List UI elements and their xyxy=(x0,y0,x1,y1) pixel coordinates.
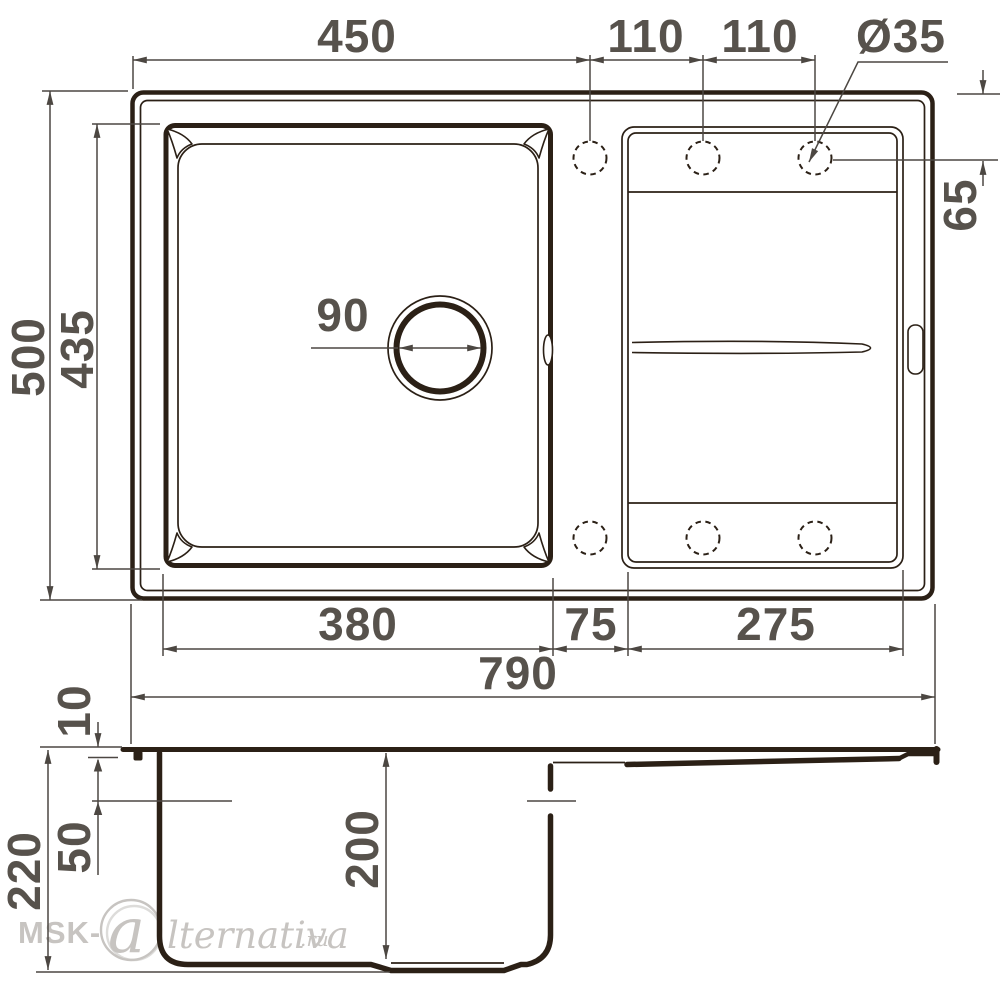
label-10: 10 xyxy=(48,684,100,737)
watermark: MSK- a lternativa .ru xyxy=(18,894,349,967)
label-50: 50 xyxy=(48,820,100,873)
dimension-labels: 450 110 110 Ø35 65 500 435 90 380 75 275… xyxy=(0,10,986,911)
label-790: 790 xyxy=(478,647,558,699)
label-500: 500 xyxy=(2,317,54,397)
leader-hole-diameter xyxy=(809,62,948,162)
label-75: 75 xyxy=(564,598,617,650)
label-380: 380 xyxy=(318,598,398,650)
bowl-outline xyxy=(166,126,551,566)
bowl-corner-detail-bl xyxy=(167,533,192,562)
bowl-overflow-notch xyxy=(544,335,553,365)
watermark-tld: .ru xyxy=(300,927,329,951)
drainboard-groove xyxy=(632,341,871,353)
faucet-hole-bottom-1 xyxy=(574,522,607,555)
top-view xyxy=(133,93,933,599)
bowl-corner-detail-br xyxy=(524,533,549,562)
side-drainboard-step xyxy=(899,754,934,759)
faucet-hole-bottom-3 xyxy=(799,522,832,555)
sink-technical-drawing: MSK- a lternativa .ru xyxy=(0,0,1000,1000)
bowl-corner-detail-tl xyxy=(167,129,192,158)
watermark-prefix: MSK- xyxy=(18,915,101,950)
watermark-monogram: a xyxy=(108,894,145,967)
faucet-hole-top-1 xyxy=(574,142,607,175)
label-65: 65 xyxy=(934,178,986,231)
faucet-hole-top-3 xyxy=(799,142,832,175)
dim-arrow-50-bottom xyxy=(94,802,102,815)
label-220: 220 xyxy=(0,831,50,911)
label-hole-diameter: Ø35 xyxy=(856,10,946,62)
bowl-corner-detail-tr xyxy=(524,129,549,158)
side-drainboard-slope xyxy=(627,759,899,765)
label-435: 435 xyxy=(51,309,103,389)
label-110a: 110 xyxy=(607,10,684,62)
label-200: 200 xyxy=(336,809,388,889)
label-450: 450 xyxy=(317,10,397,62)
label-110b: 110 xyxy=(721,10,798,62)
faucet-hole-bottom-2 xyxy=(687,522,720,555)
label-275: 275 xyxy=(736,598,816,650)
dim-arrow-10-bottom xyxy=(94,759,102,772)
overflow-slot xyxy=(908,325,923,374)
side-rim-left-lip xyxy=(134,751,143,761)
faucet-hole-top-2 xyxy=(687,142,720,175)
label-90: 90 xyxy=(316,289,369,341)
